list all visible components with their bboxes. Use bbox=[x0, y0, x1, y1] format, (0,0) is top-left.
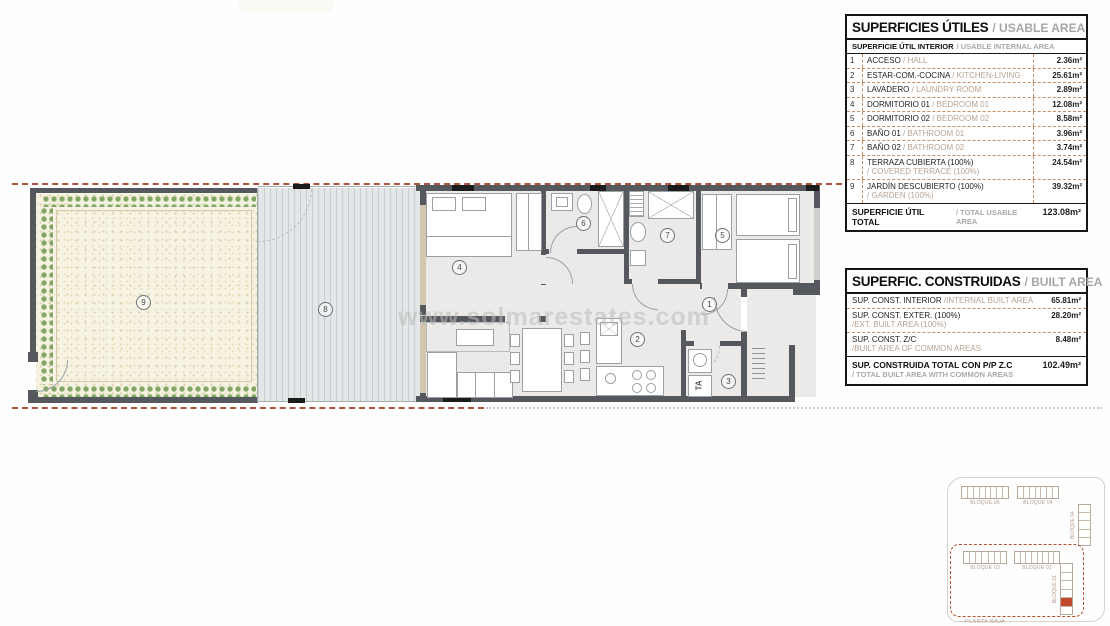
pillow bbox=[788, 244, 797, 279]
sink-basin bbox=[556, 197, 568, 207]
room-circle-laundry: 3 bbox=[721, 374, 736, 389]
table-row: 7 BAÑO 02 / BATHROOM 02 3.74m² bbox=[847, 141, 1086, 156]
keyplan-block-04: BLOQUE 04 bbox=[1017, 486, 1059, 506]
radiator bbox=[629, 191, 644, 217]
room-circle-bedroom-01: 4 bbox=[452, 260, 467, 275]
hob-burner bbox=[632, 383, 642, 393]
sink bbox=[630, 250, 646, 266]
washer-drum bbox=[693, 353, 707, 367]
table-row: SUP. CONST. Z/C/BUILT AREA OF COMMON ARE… bbox=[847, 333, 1086, 356]
chair bbox=[510, 370, 520, 383]
chair bbox=[580, 332, 590, 345]
sofa bbox=[457, 372, 513, 398]
room-circle-terrace: 8 bbox=[318, 302, 333, 317]
keyplan-block-right bbox=[1078, 504, 1091, 546]
table-row: 9 JARDÍN DESCUBIERTO (100%)/ GARDEN (100… bbox=[847, 180, 1086, 203]
table-row: SUP. CONST. INTERIOR /INTERNAL BUILT ARE… bbox=[847, 294, 1086, 309]
wardrobe bbox=[516, 193, 542, 251]
keyplan-block-01 bbox=[1060, 563, 1073, 615]
ac-unit bbox=[752, 348, 765, 380]
water-heater-label: TA bbox=[695, 380, 704, 390]
table-row: 1 ACCESO / HALL 2.36m² bbox=[847, 54, 1086, 69]
table-row: 8 TERRAZA CUBIERTA (100%)/ COVERED TERRA… bbox=[847, 156, 1086, 180]
toilet bbox=[630, 222, 646, 242]
highlighted-unit bbox=[1061, 598, 1072, 607]
pillow bbox=[788, 198, 797, 232]
built-area-total-row: SUP. CONSTRUIDA TOTAL CON P/P Z.C / TOTA… bbox=[847, 356, 1086, 384]
room-circle-garden: 9 bbox=[136, 295, 151, 310]
plot-boundary-bottom bbox=[12, 407, 484, 409]
table-row: SUP. CONST. EXTER. (100%)/EXT. BUILT ARE… bbox=[847, 309, 1086, 333]
sofa-chaise bbox=[427, 352, 457, 398]
chair bbox=[510, 352, 520, 365]
wardrobe bbox=[702, 194, 732, 250]
pillow bbox=[462, 197, 486, 211]
chair bbox=[564, 334, 574, 347]
chair bbox=[510, 334, 520, 347]
dining-table bbox=[522, 328, 562, 392]
toilet bbox=[577, 194, 592, 214]
table-row: 5 DORMITORIO 02 / BEDROOM 02 8.58m² bbox=[847, 112, 1086, 127]
garden-inner-border bbox=[56, 210, 252, 382]
hedge-bottom bbox=[42, 385, 256, 397]
chair bbox=[580, 368, 590, 381]
keyplan-block-05: BLOQUE 05 bbox=[961, 486, 1009, 506]
watermark: www.solmarestates.com bbox=[398, 303, 710, 332]
built-area-table-header: SUPERFIC. CONSTRUIDAS / BUILT AREA bbox=[847, 270, 1086, 294]
chair bbox=[564, 352, 574, 365]
chair bbox=[564, 370, 574, 383]
usable-area-table-subheader: SUPERFICIE ÚTIL INTERIOR / USABLE INTERN… bbox=[847, 40, 1086, 54]
usable-area-total-row: SUPERFICIE ÚTIL TOTAL / TOTAL USABLE ARE… bbox=[847, 203, 1086, 230]
table-title-es: SUPERFICIES ÚTILES bbox=[852, 20, 988, 35]
hob-burner bbox=[646, 370, 656, 380]
table-row: 4 DORMITORIO 01 / BEDROOM 01 12.08m² bbox=[847, 98, 1086, 113]
table-title-en: / USABLE AREA bbox=[992, 21, 1085, 35]
hob-burner bbox=[646, 383, 656, 393]
table-row: 6 BAÑO 01 / BATHROOM 01 3.96m² bbox=[847, 127, 1086, 142]
sink-bowl bbox=[605, 373, 616, 384]
table-row: 2 ESTAR-COM.-COCINA / KITCHEN-LIVING 25.… bbox=[847, 69, 1086, 84]
keyplan-caption: PLANTA BAJA bbox=[965, 619, 1005, 625]
room-circle-kitchen-living: 2 bbox=[630, 332, 645, 347]
shower bbox=[598, 191, 624, 247]
shower bbox=[648, 191, 694, 219]
room-circle-bathroom-01: 6 bbox=[576, 216, 591, 231]
hob-burner bbox=[632, 370, 642, 380]
table-row: 3 LAVADERO / LAUNDRY ROOM 2.89m² bbox=[847, 83, 1086, 98]
pillow bbox=[432, 197, 456, 211]
hedge-left bbox=[40, 207, 53, 385]
built-area-table: SUPERFIC. CONSTRUIDAS / BUILT AREA SUP. … bbox=[845, 268, 1088, 386]
site-key-plan: BLOQUE 05 BLOQUE 04 BLOQUE 04 BLOQUE 03 … bbox=[945, 476, 1107, 626]
floorplan-sheet: TA 1 2 3 4 5 6 7 8 9 www.solmarestates.c… bbox=[0, 0, 1110, 626]
usable-area-table-header: SUPERFICIES ÚTILES / USABLE AREA bbox=[847, 16, 1086, 40]
chair bbox=[580, 350, 590, 363]
usable-area-table: SUPERFICIES ÚTILES / USABLE AREA SUPERFI… bbox=[845, 14, 1088, 232]
logo-remnant bbox=[238, 0, 334, 11]
keyplan-block-03: BLOQUE 03 bbox=[963, 551, 1007, 571]
plot-boundary-bottom-ext bbox=[486, 407, 1102, 409]
room-circle-bathroom-02: 7 bbox=[660, 228, 675, 243]
hedge-top bbox=[42, 195, 256, 207]
room-circle-bedroom-02: 5 bbox=[715, 228, 730, 243]
